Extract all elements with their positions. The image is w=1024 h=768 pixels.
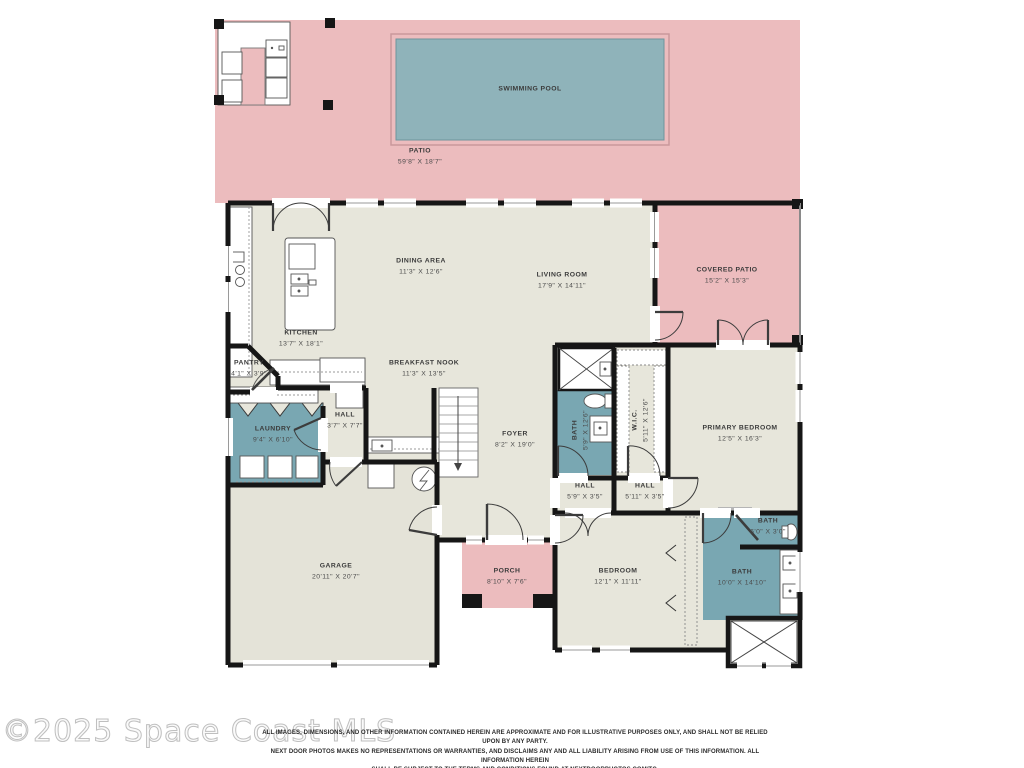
room-label-primary-bedroom: PRIMARY BEDROOM12'5" X 16'3" xyxy=(702,423,777,444)
room-label-living-room: LIVING ROOM17'9" X 14'11" xyxy=(537,270,588,291)
floor-plan-page: SWIMMING POOL PATIO59'8" X 18'7" DINING … xyxy=(0,0,1024,768)
room-label-breakfast-nook: BREAKFAST NOOK11'3" X 13'5" xyxy=(389,358,459,379)
outdoor-kitchen xyxy=(218,22,290,105)
room-label-hall-b: HALL5'9" X 3'5" xyxy=(567,481,603,502)
room-label-covered-patio: COVERED PATIO15'2" X 15'3" xyxy=(696,265,757,286)
room-label-pantry: PANTRY4'1" X 3'9" xyxy=(231,358,267,379)
floor-plan-drawing xyxy=(0,0,1024,768)
room-label-patio: PATIO59'8" X 18'7" xyxy=(398,146,442,167)
room-label-laundry: LAUNDRY9'4" X 6'10" xyxy=(253,424,293,445)
disclaimer-line-2: NEXT DOOR PHOTOS MAKES NO REPRESENTATION… xyxy=(253,748,777,767)
tub xyxy=(731,621,797,663)
room-label-garage: GARAGE20'11" X 20'7" xyxy=(312,561,360,582)
room-label-swimming-pool: SWIMMING POOL xyxy=(498,85,561,96)
room-label-hall-a: HALL3'7" X 7'7" xyxy=(327,410,363,431)
room-label-bath-big: BATH10'0" X 14'10" xyxy=(718,567,767,588)
room-label-kitchen: KITCHEN13'7" X 18'1" xyxy=(279,328,323,349)
room-label-wic: W.I.C.5'11" X 12'6" xyxy=(630,398,651,442)
room-label-porch: PORCH8'10" X 7'6" xyxy=(487,566,527,587)
disclaimer-line-1: ALL IMAGES, DIMENSIONS, AND OTHER INFORM… xyxy=(253,729,777,748)
room-label-primary-bath: BATH5'9" X 12'6" xyxy=(570,410,591,450)
room-label-foyer: FOYER8'2" X 19'0" xyxy=(495,429,535,450)
room-label-bedroom: BEDROOM12'1" X 11'11" xyxy=(594,566,641,587)
room-label-dining-area: DINING AREA11'3" X 12'6" xyxy=(396,256,446,277)
disclaimer-text: ALL IMAGES, DIMENSIONS, AND OTHER INFORM… xyxy=(253,729,777,768)
room-label-bath-small: BATH6'0" X 3'0" xyxy=(750,516,786,537)
room-label-hall-c: HALL5'11" X 3'5" xyxy=(625,481,665,502)
